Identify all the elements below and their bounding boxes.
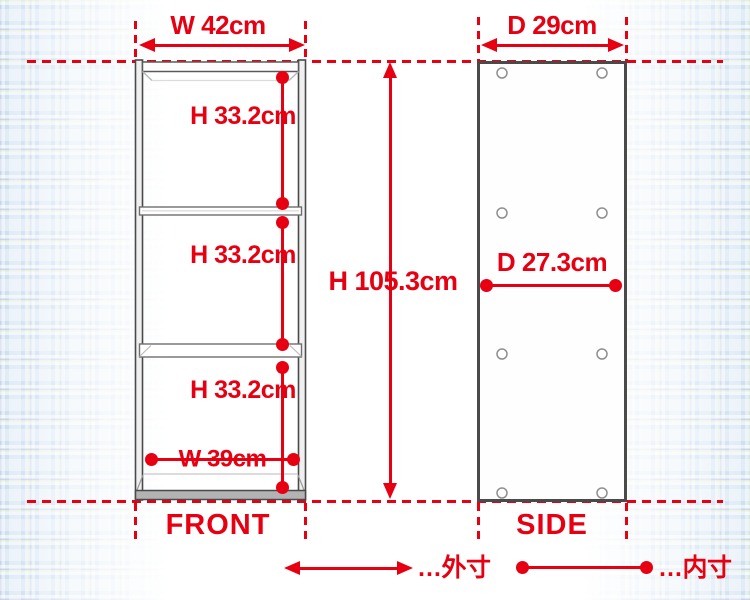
side-outer-depth-arrow (481, 38, 624, 52)
overall-height-label: H 105.3cm (328, 267, 457, 295)
front-inner-width-label: W 39cm (179, 446, 267, 471)
arrow-shaft (490, 44, 615, 47)
dimension-dot-icon (276, 481, 289, 494)
front-view-caption: FRONT (130, 510, 306, 540)
side-inner-depth-line (480, 279, 622, 292)
dimension-dot-icon (640, 561, 653, 574)
arrowhead-right-icon (397, 561, 413, 575)
legend-inner-dimension-label: …内寸 (658, 555, 732, 581)
front-outer-width-label: W 42cm (130, 12, 306, 39)
dimension-dot-icon (276, 338, 289, 351)
arrow-shaft (148, 44, 296, 47)
dimension-dot-icon (609, 279, 622, 292)
dimension-line (486, 284, 616, 287)
arrow-shaft (293, 567, 404, 570)
dimension-line (281, 77, 284, 204)
section-1-dimension-line (276, 71, 289, 210)
section-2-dimension-line (276, 216, 289, 351)
dimension-diagram: W 42cm D 29cm H 105.3cm H 33.2cm H 33.2c… (0, 0, 750, 600)
front-right-panel (299, 60, 306, 500)
legend-inner-dimension-line-icon (516, 561, 653, 574)
front-left-panel (136, 60, 143, 500)
section-1-height-label: H 33.2cm (190, 103, 296, 129)
arrowhead-right-icon (289, 38, 305, 52)
front-inner-width-line: W 39cm (145, 453, 300, 466)
arrowhead-down-icon (383, 483, 397, 499)
section-2-height-label: H 33.2cm (190, 242, 296, 268)
dimension-dot-icon (287, 453, 300, 466)
side-view-caption: SIDE (472, 510, 632, 540)
dimension-dot-icon (276, 197, 289, 210)
side-outer-depth-label: D 29cm (472, 12, 632, 39)
side-inner-depth-label: D 27.3cm (497, 249, 607, 276)
section-3-height-label: H 33.2cm (190, 377, 296, 403)
dimension-line (522, 566, 647, 569)
legend-outer-dimension-label: …外寸 (417, 555, 491, 581)
front-outer-width-arrow (139, 38, 305, 52)
arrowhead-right-icon (608, 38, 624, 52)
legend-outer-dimension-arrow-icon (284, 561, 413, 575)
